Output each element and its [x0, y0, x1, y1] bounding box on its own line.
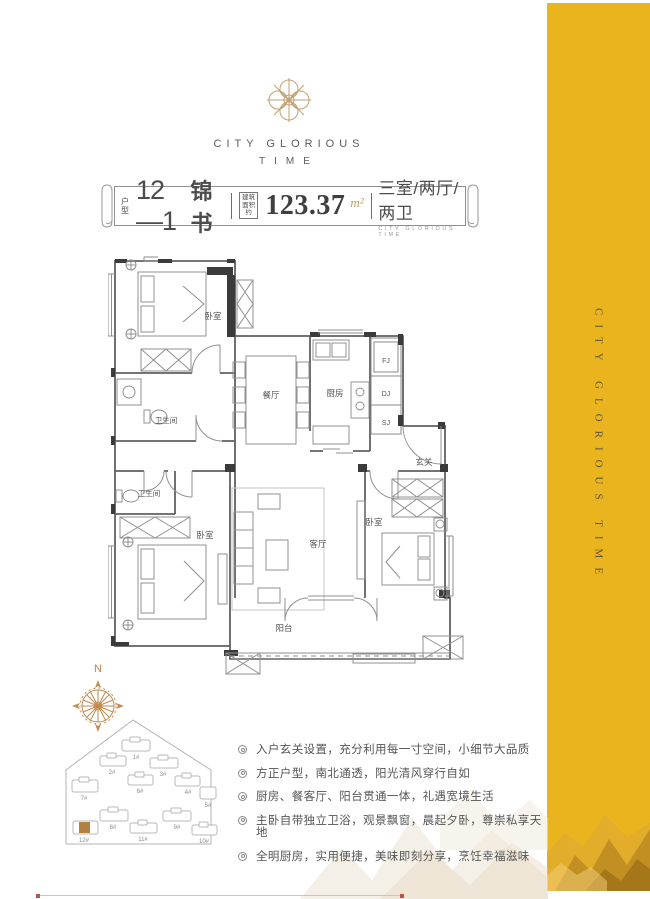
rooms-summary-sub: CITY GLORIOUS TIME	[378, 226, 459, 238]
bullet-circle-inner	[241, 818, 245, 822]
building-label: 5#	[205, 803, 212, 809]
area-value: 123.37	[265, 190, 345, 222]
brand-name-line1: CITY GLORIOUS	[202, 138, 376, 150]
room-label-shaft-dj: DJ	[382, 391, 391, 398]
unit-label-char-1: 户	[121, 197, 129, 206]
bullet-circle-icon	[238, 792, 247, 801]
bottom-cropped-strip	[36, 895, 404, 899]
brand-logo: CITY GLORIOUS TIME	[202, 76, 376, 167]
building-label: 7#	[81, 796, 88, 802]
title-banner-box: 户 型 12—1 锦书 建筑 面积约 123.37 m² 三室/两厅/两卫 CI…	[114, 186, 466, 226]
rooms-summary: 三室/两厅/两卫	[378, 174, 459, 224]
plan-walls	[115, 261, 450, 659]
unit-label-char-2: 型	[121, 206, 129, 215]
area-unit: m²	[350, 195, 363, 211]
room-label-bedroom-top: 卧室	[204, 311, 222, 321]
room-label-foyer: 玄关	[415, 457, 433, 467]
area-label-line2: 面积约	[242, 202, 256, 217]
building-label: 1#	[133, 755, 140, 761]
feature-text: 方正户型，南北通透，阳光清风穿行自如	[256, 768, 470, 781]
feature-item: 厨房、餐客厅、阳台贯通一体，礼遇宽境生活	[238, 791, 543, 804]
scroll-end-left-icon	[100, 183, 114, 229]
scroll-end-right-icon	[466, 183, 480, 229]
feature-text: 主卧自带独立卫浴，观景飘窗，晨起夕卧，尊崇私享天地	[256, 815, 543, 840]
room-label-bath-master: 卫生间	[138, 488, 161, 498]
building-label: 10#	[199, 839, 210, 845]
bullet-circle-icon	[238, 769, 247, 778]
building-label: 9#	[174, 825, 181, 831]
feature-text: 入户玄关设置，充分利用每一寸空间，小细节大品质	[256, 744, 530, 757]
unit-name: 锦书	[191, 174, 225, 238]
bullet-circle-icon	[238, 745, 247, 754]
bullet-circle-icon	[238, 852, 247, 861]
feature-item: 方正户型，南北通透，阳光清风穿行自如	[238, 768, 543, 781]
room-label-bedroom-right: 卧室	[365, 517, 383, 527]
room-label-balcony: 阳台	[275, 623, 292, 633]
room-label-dining: 餐厅	[262, 390, 280, 400]
bullet-circle-icon	[238, 816, 247, 825]
building-label: 12#	[79, 838, 90, 844]
feature-text: 厨房、餐客厅、阳台贯通一体，礼遇宽境生活	[256, 791, 494, 804]
side-gold-band: CITY GLORIOUS TIME	[547, 3, 650, 891]
plan-furniture	[116, 260, 463, 674]
room-label-bedroom-master: 卧室	[196, 530, 214, 540]
unit-type-label: 户 型	[121, 197, 129, 215]
medallion-icon	[265, 76, 313, 124]
feature-item: 全明厨房，实用便捷，美味即刻分享，烹饪幸福滋味	[238, 851, 543, 864]
site-building-highlighted	[79, 822, 90, 833]
side-band-vertical-text: CITY GLORIOUS TIME	[593, 308, 605, 583]
room-label-bath-top: 卫生间	[155, 415, 178, 425]
feature-item: 主卧自带独立卫浴，观景飘窗，晨起夕卧，尊崇私享天地	[238, 815, 543, 840]
building-label: 3#	[160, 772, 167, 778]
rooms-summary-block: 三室/两厅/两卫 CITY GLORIOUS TIME	[378, 174, 459, 238]
unit-number: 12—1	[136, 175, 184, 237]
floor-plan: 卧室 卫生间 餐厅 厨房 FJ DJ SJ 玄关 卫生间 卧室 客厅 卧室 阳台	[108, 246, 544, 698]
strip-corner-mark	[36, 894, 40, 898]
compass-north-label: N	[94, 663, 102, 675]
room-label-kitchen: 厨房	[326, 388, 343, 398]
page: CITY GLORIOUS TIME CITY GLORIOUS TIME	[0, 0, 650, 899]
building-label: 8#	[110, 825, 117, 831]
site-plan: 1# 2# 3# 4# 5# 6# 7# 8# 9# 10# 11# 12#	[50, 716, 222, 850]
area-label-box: 建筑 面积约	[239, 192, 259, 219]
room-label-shaft-fj: FJ	[382, 358, 390, 365]
feature-item: 入户玄关设置，充分利用每一寸空间，小细节大品质	[238, 744, 543, 757]
strip-corner-mark	[400, 894, 404, 898]
bullet-circle-inner	[241, 771, 245, 775]
feature-list: 入户玄关设置，充分利用每一寸空间，小细节大品质 方正户型，南北通透，阳光清风穿行…	[238, 744, 543, 874]
room-label-living: 客厅	[309, 539, 327, 549]
brand-name-line2: TIME	[202, 156, 376, 167]
band-mountains-art	[547, 771, 650, 891]
title-banner: 户 型 12—1 锦书 建筑 面积约 123.37 m² 三室/两厅/两卫 CI…	[100, 182, 480, 229]
divider	[231, 193, 232, 219]
building-label: 11#	[138, 837, 148, 843]
feature-text: 全明厨房，实用便捷，美味即刻分享，烹饪幸福滋味	[256, 851, 530, 864]
bullet-circle-inner	[241, 748, 245, 752]
building-label: 2#	[109, 770, 116, 776]
bullet-circle-inner	[241, 795, 245, 799]
area-label-line1: 建筑	[242, 194, 256, 202]
building-label: 6#	[137, 789, 144, 795]
divider	[371, 193, 372, 219]
site-buildings	[72, 737, 217, 835]
building-label: 4#	[185, 790, 192, 796]
room-label-shaft-sj: SJ	[382, 420, 390, 427]
bullet-circle-inner	[241, 854, 245, 858]
plan-doors	[144, 345, 441, 621]
